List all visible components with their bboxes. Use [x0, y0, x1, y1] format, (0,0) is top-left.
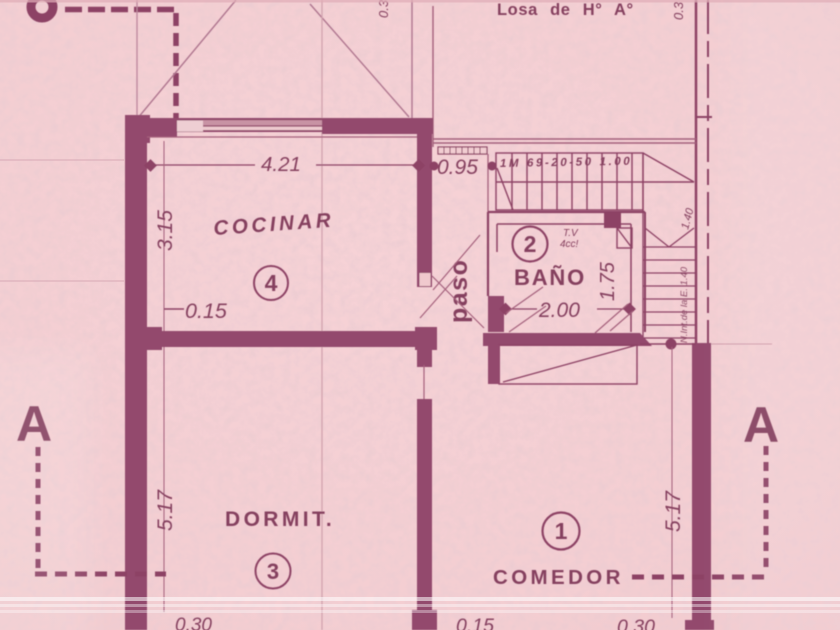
svg-text:0.95: 0.95	[437, 156, 478, 179]
svg-text:1: 1	[555, 518, 568, 544]
svg-text:0.30: 0.30	[617, 616, 655, 630]
svg-text:4: 4	[265, 270, 278, 296]
svg-text:N.Int.de la E. 1.40: N.Int.de la E. 1.40	[679, 266, 690, 343]
svg-text:2.00: 2.00	[538, 299, 580, 322]
svg-text:1.75: 1.75	[597, 261, 619, 301]
svg-text:3: 3	[267, 559, 279, 584]
svg-text:2: 2	[524, 231, 537, 257]
svg-text:4.21: 4.21	[261, 153, 301, 176]
svg-text:DORMIT.: DORMIT.	[225, 508, 335, 531]
svg-text:0.15: 0.15	[185, 299, 228, 323]
svg-text:0.3: 0.3	[671, 1, 686, 20]
svg-text:0.15: 0.15	[456, 615, 494, 630]
svg-text:0.3: 0.3	[376, 0, 391, 18]
svg-text:3.15: 3.15	[154, 210, 177, 251]
svg-text:BAÑO: BAÑO	[514, 265, 586, 290]
svg-text:0.30: 0.30	[175, 615, 212, 630]
svg-text:5.17: 5.17	[154, 489, 177, 531]
svg-text:4cc!: 4cc!	[560, 239, 579, 250]
svg-text:T.V: T.V	[563, 228, 579, 239]
svg-text:5.17: 5.17	[662, 490, 685, 532]
svg-text:1M 69-20-50 1.00: 1M 69-20-50 1.00	[500, 156, 633, 170]
svg-text:COMEDOR: COMEDOR	[493, 566, 624, 589]
svg-text:Losa de H° A°: Losa de H° A°	[497, 1, 634, 19]
